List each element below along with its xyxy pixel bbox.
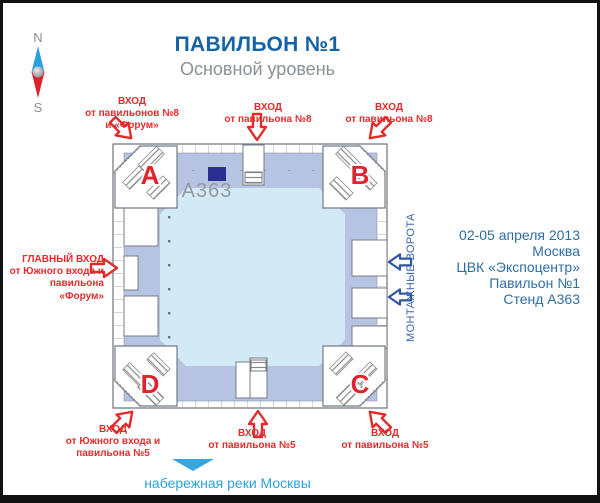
corner-letter-d: D [141, 369, 160, 399]
label-line: ВХОД [72, 96, 192, 108]
frame-top [0, 0, 600, 3]
label-line: ВХОД [48, 424, 178, 436]
event-info: 02-05 апреля 2013 Москва ЦВК «Экспоцентр… [430, 227, 580, 307]
label-line: от павильона №5 [197, 440, 307, 452]
corner-letter-b: B [351, 160, 370, 190]
label-entrance-bottom-middle: ВХОД от павильона №5 [197, 428, 307, 452]
river-arrow-icon [172, 459, 214, 471]
label-line: «Форум» [8, 291, 104, 303]
frame-bottom [0, 495, 600, 503]
label-entrance-bottom-right: ВХОД от павильона №5 [330, 428, 440, 452]
compass-north-label: N [33, 30, 42, 45]
stand-label: А363 [182, 180, 233, 202]
info-stand: Стенд А363 [430, 291, 580, 307]
compass-pivot [33, 67, 44, 78]
page-title: ПАВИЛЬОН №1 [110, 33, 405, 57]
label-line: и «Форум» [72, 120, 192, 132]
label-line: ВХОД [334, 102, 444, 114]
label-line: от павильонов №8 [72, 108, 192, 120]
corner-letter-c: C [351, 369, 370, 399]
label-line: ГЛАВНЫЙ ВХОД [8, 254, 104, 266]
label-line: от павильона №5 [330, 440, 440, 452]
gates-label: МОНТАЖНЫЕ ВОРОТА [405, 212, 417, 342]
label-line: ВХОД [197, 428, 307, 440]
label-entrance-bottom-left: ВХОД от Южного входа и павильона №5 [48, 424, 178, 461]
compass-south-label: S [34, 100, 43, 115]
label-line: от павильона №8 [334, 114, 444, 126]
label-line: павильона №5 [48, 448, 178, 460]
river-label: набережная реки Москвы [140, 475, 315, 491]
venue-map-page: N S [0, 0, 600, 503]
label-line: ВХОД [213, 102, 323, 114]
label-line: от павильона №8 [213, 114, 323, 126]
stand-marker [208, 167, 226, 181]
central-hall [160, 188, 345, 366]
label-entrance-top-middle: ВХОД от павильона №8 [213, 102, 323, 126]
info-venue: ЦВК «Экспоцентр» [430, 259, 580, 275]
page-subtitle: Основной уровень [110, 59, 405, 80]
label-entrance-main: ГЛАВНЫЙ ВХОД от Южного входа и павильона… [8, 254, 104, 303]
label-entrance-top-right: ВХОД от павильона №8 [334, 102, 444, 126]
label-line: от Южного входа и [8, 266, 104, 278]
title-block: ПАВИЛЬОН №1 Основной уровень [110, 33, 405, 80]
info-pavilion: Павильон №1 [430, 275, 580, 291]
info-city: Москва [430, 243, 580, 259]
label-line: от Южного входа и [48, 436, 178, 448]
compass-rose-icon: N S [32, 30, 45, 115]
frame-left [0, 0, 3, 503]
label-entrance-top-left: ВХОД от павильонов №8 и «Форум» [72, 96, 192, 133]
label-line: павильона [8, 278, 104, 290]
label-line: ВХОД [330, 428, 440, 440]
corner-letter-a: A [141, 160, 160, 190]
info-date: 02-05 апреля 2013 [430, 227, 580, 243]
